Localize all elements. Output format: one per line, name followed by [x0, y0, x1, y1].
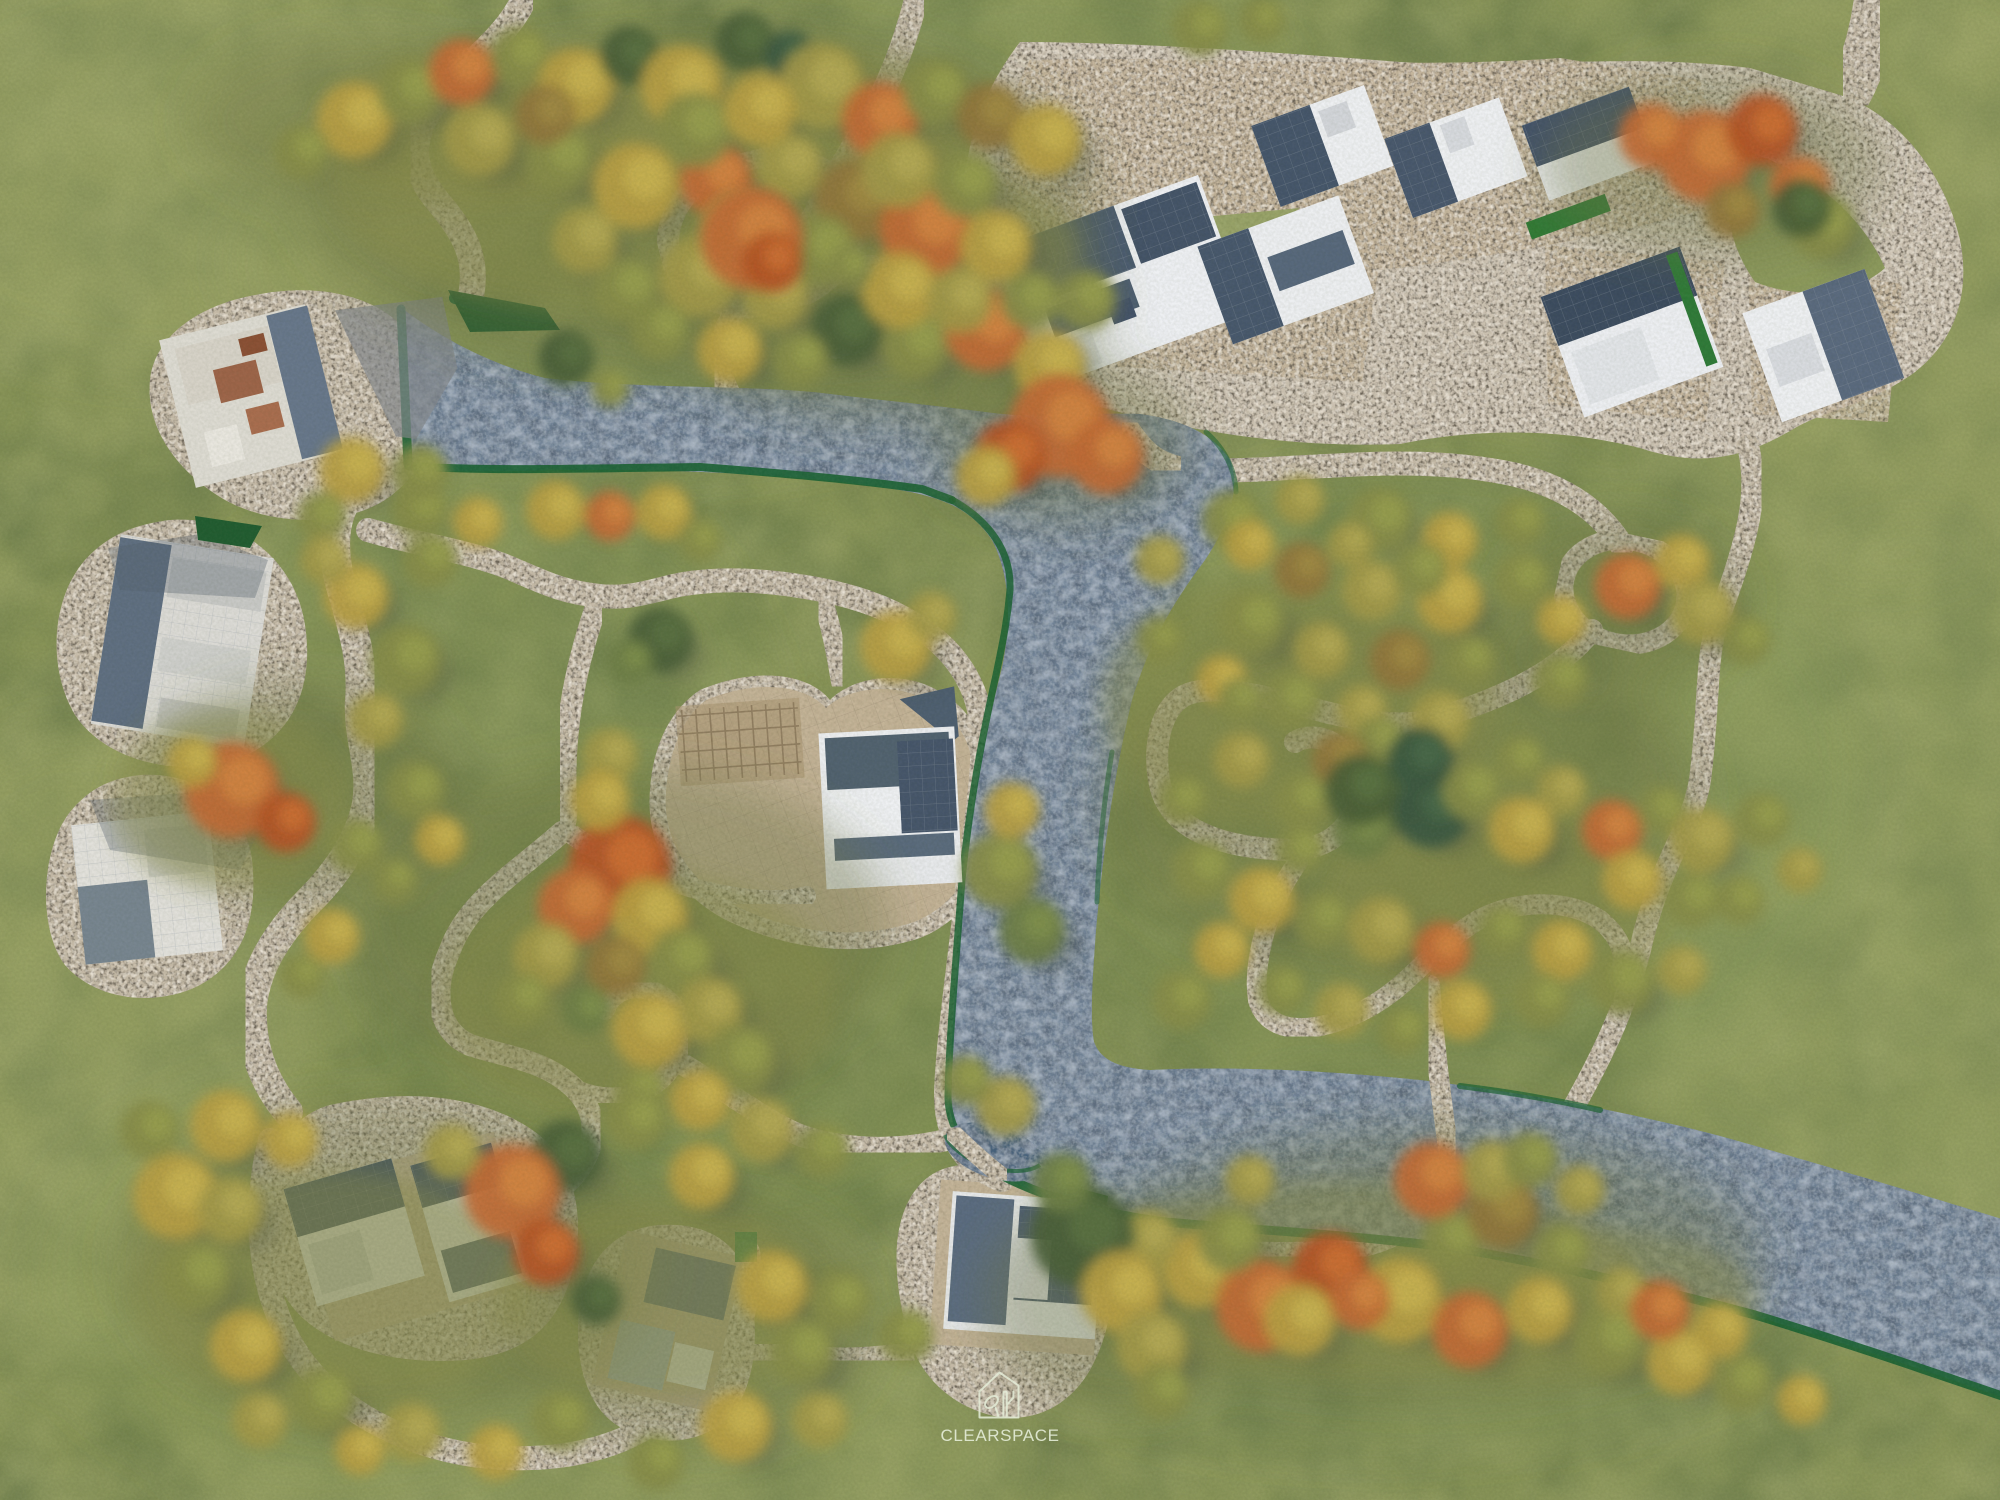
svg-text:CLEARSPACE: CLEARSPACE [940, 1426, 1059, 1445]
